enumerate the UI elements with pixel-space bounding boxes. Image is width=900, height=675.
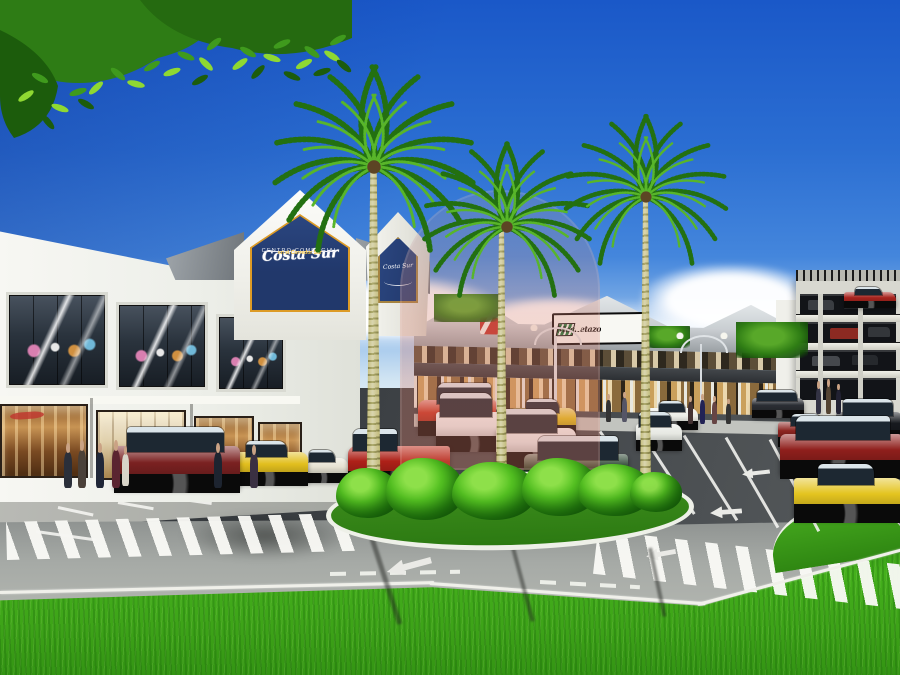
garage-slab — [796, 370, 900, 378]
garage-level — [800, 350, 896, 370]
pedestrian — [250, 454, 258, 488]
parked-car — [868, 327, 890, 337]
pedestrian — [64, 452, 72, 488]
pedestrian — [214, 452, 222, 488]
pedestrian — [712, 402, 717, 424]
garage-slab — [796, 314, 900, 322]
shopping-center-rendering: Costa Sur CENTRO COMERCIAL en el Corredo… — [0, 0, 900, 675]
car-red-rooftop — [844, 292, 896, 306]
upper-storefront-window — [6, 292, 108, 388]
pedestrian — [836, 390, 841, 414]
car-yellow-taxi-left — [228, 452, 308, 482]
pedestrian — [122, 454, 129, 486]
parked-car — [812, 356, 840, 366]
pedestrian — [96, 452, 104, 488]
car-yellow-taxi-right — [794, 478, 900, 518]
pedestrian — [78, 450, 86, 488]
island-bush — [630, 472, 682, 512]
garage-slab — [796, 342, 900, 350]
overhanging-tree-foliage — [0, 0, 352, 156]
pedestrian — [700, 400, 705, 424]
storefront-canopy-edge — [0, 396, 300, 404]
pedestrian — [112, 450, 120, 488]
pedestrian — [606, 400, 611, 422]
palm-tree-crown — [550, 124, 742, 270]
pedestrian — [826, 386, 831, 414]
facade-pier — [90, 398, 93, 478]
upper-storefront-window — [116, 302, 208, 390]
parked-car — [852, 355, 878, 365]
garage-level — [800, 322, 896, 342]
pedestrian — [726, 404, 731, 424]
pedestrian — [622, 398, 627, 422]
pedestrian — [688, 402, 693, 424]
pedestrian — [816, 388, 821, 414]
garage-level — [800, 378, 896, 400]
background-tree — [736, 322, 808, 358]
